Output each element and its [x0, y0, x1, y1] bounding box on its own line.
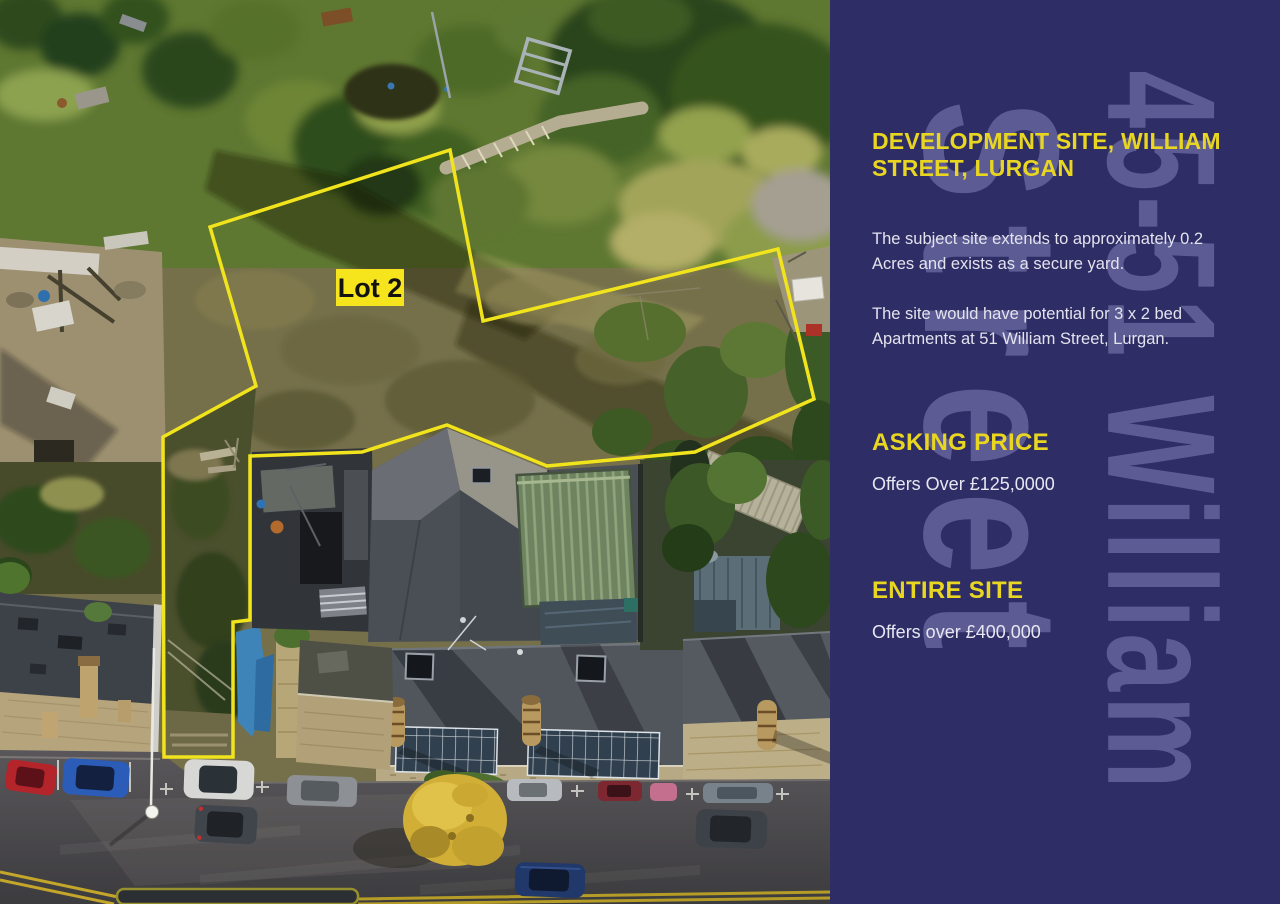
car-blue [62, 758, 130, 799]
van-bottom [117, 889, 358, 904]
car-dark-red [598, 781, 642, 801]
listing-title: DEVELOPMENT SITE, WILLIAM STREET, LURGAN [872, 128, 1230, 182]
car-dark-grey-right [695, 809, 767, 849]
car-grey-blue [703, 783, 773, 803]
green-roof-building [517, 469, 637, 607]
info-panel: Street 45-51 William DEVELOPMENT SITE, W… [830, 0, 1280, 904]
red-container [806, 324, 822, 336]
aerial-photo: Lot 2 [0, 0, 830, 904]
lamp-head [146, 806, 159, 819]
white-trailer [792, 276, 824, 301]
listing-description-2: The site would have potential for 3 x 2 … [872, 302, 1230, 352]
car-white [183, 759, 254, 800]
car-dark-grey [194, 804, 258, 844]
asking-price-value: Offers Over £125,0000 [872, 474, 1230, 495]
chimney-stack [522, 695, 542, 746]
copper-cone [271, 521, 284, 534]
lot-2-label: Lot 2 [336, 269, 404, 306]
main-buildings [252, 428, 684, 800]
asking-price-label: ASKING PRICE [872, 429, 1230, 457]
listing-description-1: The subject site extends to approximatel… [872, 227, 1230, 277]
skylight [577, 656, 606, 682]
entire-site-value: Offers over £400,000 [872, 622, 1230, 643]
car-dark-blue [514, 862, 585, 898]
terrace-chimney [80, 660, 98, 718]
lot-2-label-text: Lot 2 [338, 273, 403, 303]
entire-site-label: ENTIRE SITE [872, 577, 1230, 605]
ruins-left [0, 231, 166, 470]
car-grey [286, 775, 357, 807]
car-silver [507, 779, 562, 801]
car-pink [650, 783, 677, 801]
skylight [406, 654, 434, 680]
aerial-photo-svg: Lot 2 [0, 0, 830, 904]
